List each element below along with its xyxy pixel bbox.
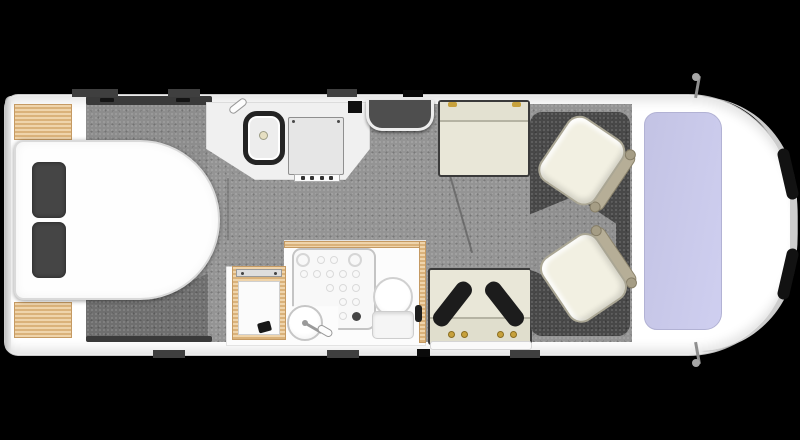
- hob-knob: [329, 176, 333, 180]
- shower-dot: [339, 298, 347, 306]
- pillow-left: [32, 162, 66, 218]
- pillow-right: [32, 222, 66, 278]
- hob-screw: [292, 120, 295, 123]
- bench-base-trim: [430, 341, 532, 350]
- bench-seat-front: [438, 100, 530, 177]
- roof-fitting: [168, 89, 200, 97]
- floor-seam: [227, 178, 229, 240]
- shower-ring: [348, 253, 362, 267]
- shower-dot: [300, 270, 308, 278]
- seat-belt-buckle: [497, 331, 504, 338]
- shower-dot: [339, 312, 347, 320]
- shower-ring: [296, 253, 310, 267]
- hob-knob: [310, 176, 314, 180]
- wing-mirror-bottom-cap: [692, 359, 700, 367]
- shower-dot: [352, 284, 360, 292]
- shower-dot: [339, 284, 347, 292]
- seat-belt-buckle: [461, 331, 468, 338]
- skirt-fitting: [153, 350, 185, 358]
- toilet-base: [372, 311, 414, 339]
- hob-screw: [337, 120, 340, 123]
- wardrobe-bottom: [14, 302, 72, 338]
- seat-belt-anchor: [512, 102, 521, 107]
- cabinet-top-bar: [236, 269, 282, 277]
- locker-handle: [100, 98, 114, 102]
- locker-handle: [176, 98, 190, 102]
- shower-dot: [339, 270, 347, 278]
- wing-mirror-top-cap: [692, 73, 700, 81]
- shower-dot: [326, 284, 334, 292]
- shower-drain: [352, 312, 361, 321]
- seat-belt-anchor: [448, 102, 457, 107]
- cabinet-handle: [241, 272, 244, 275]
- hob-knob: [301, 176, 305, 180]
- seat-belt-buckle: [510, 331, 517, 338]
- hob: [288, 117, 344, 175]
- toilet-brush: [415, 305, 422, 322]
- door-top-vent: [403, 90, 423, 97]
- shower-dot: [330, 256, 338, 264]
- roof-fitting: [327, 89, 357, 97]
- washroom-wall-right: [419, 241, 426, 343]
- door-control-panel: [348, 101, 362, 113]
- front-bumper: [700, 97, 797, 351]
- bottom-wall-shadow: [86, 336, 212, 342]
- skirt-vent: [417, 349, 430, 357]
- shower-dot: [313, 270, 321, 278]
- motorhome-floorplan: [0, 0, 800, 440]
- hob-knob: [320, 176, 324, 180]
- skirt-fitting: [510, 350, 540, 358]
- shower-dot: [326, 270, 334, 278]
- rear-wall-edge: [5, 96, 11, 352]
- hob-control-knobs: [294, 174, 340, 182]
- skirt-fitting: [327, 350, 359, 358]
- wardrobe-top: [14, 104, 72, 140]
- shower-dot: [317, 256, 325, 264]
- shower-dot: [352, 298, 360, 306]
- washroom-wall-top: [284, 241, 424, 248]
- bedroom-floor-top: [86, 104, 208, 142]
- shower-dot: [352, 270, 360, 278]
- cabinet-handle: [274, 272, 277, 275]
- seat-belt-buckle: [448, 331, 455, 338]
- roof-fitting: [72, 89, 118, 97]
- sink-drain: [259, 131, 268, 140]
- entry-door-step: [366, 100, 434, 131]
